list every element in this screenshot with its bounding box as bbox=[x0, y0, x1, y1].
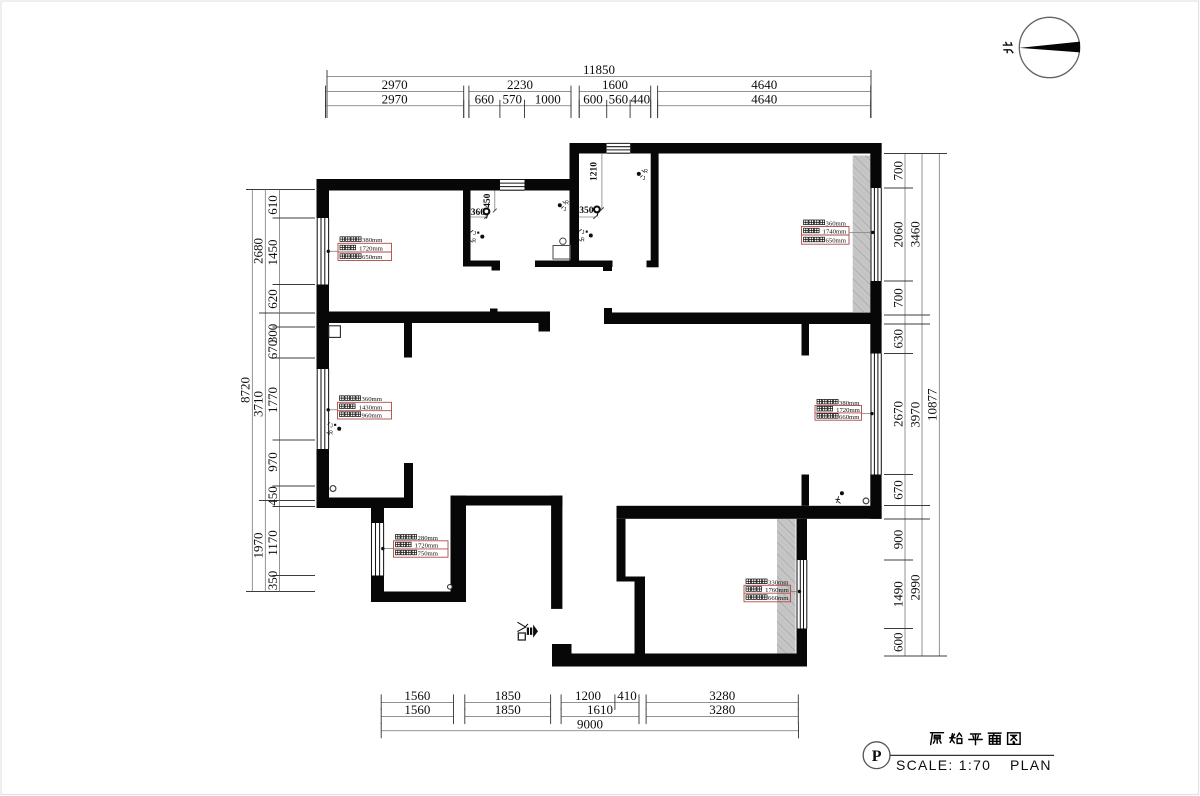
svg-text:410: 410 bbox=[617, 688, 637, 703]
svg-text:1450: 1450 bbox=[265, 240, 280, 266]
svg-text:2970: 2970 bbox=[382, 77, 408, 92]
svg-text:660: 660 bbox=[475, 91, 495, 106]
svg-text:P: P bbox=[872, 748, 882, 765]
svg-text:4640: 4640 bbox=[751, 77, 777, 92]
svg-text:700: 700 bbox=[890, 288, 905, 308]
svg-text:1490: 1490 bbox=[890, 581, 905, 607]
svg-text:660mm: 660mm bbox=[839, 414, 860, 421]
svg-text:3460: 3460 bbox=[907, 221, 922, 247]
svg-text:1610: 1610 bbox=[587, 702, 613, 717]
svg-text:900: 900 bbox=[890, 530, 905, 550]
svg-text:1850: 1850 bbox=[495, 688, 521, 703]
svg-text:2970: 2970 bbox=[382, 91, 408, 106]
svg-text:350: 350 bbox=[265, 571, 280, 591]
svg-text:1970: 1970 bbox=[251, 533, 266, 559]
svg-text:1720mm: 1720mm bbox=[359, 246, 384, 253]
svg-text:10877: 10877 bbox=[925, 388, 940, 421]
svg-text:360mm: 360mm bbox=[826, 220, 847, 227]
svg-text:3970: 3970 bbox=[907, 402, 922, 428]
svg-text:330mm: 330mm bbox=[768, 579, 789, 586]
svg-text:11850: 11850 bbox=[583, 62, 615, 77]
svg-text:1560: 1560 bbox=[404, 702, 430, 717]
svg-text:630: 630 bbox=[890, 329, 905, 349]
svg-text:1770: 1770 bbox=[265, 387, 280, 413]
svg-text:360: 360 bbox=[471, 208, 486, 218]
svg-text:440: 440 bbox=[631, 91, 651, 106]
svg-text:750mm: 750mm bbox=[418, 551, 439, 558]
svg-text:R: R bbox=[581, 237, 585, 243]
svg-text:1210: 1210 bbox=[589, 162, 599, 181]
svg-text:600: 600 bbox=[890, 633, 905, 653]
svg-text:1740mm: 1740mm bbox=[823, 229, 848, 236]
svg-text:660mm: 660mm bbox=[768, 595, 789, 602]
svg-text:1760mm: 1760mm bbox=[765, 587, 790, 594]
svg-text:1600: 1600 bbox=[602, 77, 628, 92]
svg-text:650mm: 650mm bbox=[826, 238, 847, 245]
svg-text:360mm: 360mm bbox=[362, 396, 383, 403]
svg-text:SCALE: 1:70: SCALE: 1:70 bbox=[896, 757, 991, 773]
svg-text:4640: 4640 bbox=[751, 91, 777, 106]
svg-text:1850: 1850 bbox=[495, 702, 521, 717]
svg-text:280mm: 280mm bbox=[418, 535, 439, 542]
svg-text:670: 670 bbox=[890, 480, 905, 500]
svg-text:450: 450 bbox=[265, 486, 280, 506]
svg-text:R: R bbox=[472, 238, 476, 244]
svg-text:2680: 2680 bbox=[251, 238, 266, 264]
svg-text:670: 670 bbox=[265, 340, 280, 360]
svg-text:610: 610 bbox=[265, 195, 280, 215]
svg-text:1430mm: 1430mm bbox=[359, 404, 384, 411]
svg-text:PLAN: PLAN bbox=[1010, 757, 1052, 773]
svg-text:650mm: 650mm bbox=[362, 254, 383, 261]
svg-text:570: 570 bbox=[502, 91, 522, 106]
svg-text:1720mm: 1720mm bbox=[836, 407, 861, 414]
svg-text:600: 600 bbox=[583, 91, 603, 106]
svg-text:1720mm: 1720mm bbox=[415, 543, 440, 550]
svg-text:J: J bbox=[582, 230, 585, 236]
svg-text:450: 450 bbox=[483, 193, 493, 208]
svg-text:J: J bbox=[643, 176, 646, 182]
svg-text:3280: 3280 bbox=[709, 688, 735, 703]
svg-text:3710: 3710 bbox=[251, 391, 266, 417]
svg-text:R: R bbox=[565, 200, 569, 206]
svg-text:J: J bbox=[473, 231, 476, 237]
svg-text:9000: 9000 bbox=[577, 716, 603, 731]
svg-text:J: J bbox=[330, 423, 333, 429]
svg-text:1560: 1560 bbox=[404, 688, 430, 703]
svg-text:700: 700 bbox=[890, 161, 905, 181]
svg-text:R: R bbox=[329, 431, 333, 437]
svg-text:620: 620 bbox=[265, 289, 280, 309]
svg-text:1170: 1170 bbox=[265, 530, 280, 556]
svg-text:2990: 2990 bbox=[907, 575, 922, 601]
svg-text:J: J bbox=[564, 207, 567, 213]
svg-text:2230: 2230 bbox=[507, 77, 533, 92]
svg-text:960mm: 960mm bbox=[362, 412, 383, 419]
svg-text:1200: 1200 bbox=[575, 688, 601, 703]
svg-text:R: R bbox=[644, 169, 648, 175]
svg-text:2670: 2670 bbox=[890, 401, 905, 427]
svg-text:1000: 1000 bbox=[535, 91, 561, 106]
svg-text:2060: 2060 bbox=[890, 222, 905, 248]
svg-text:380mm: 380mm bbox=[362, 237, 383, 244]
svg-text:380mm: 380mm bbox=[839, 400, 860, 407]
svg-text:350: 350 bbox=[579, 206, 594, 216]
svg-text:3280: 3280 bbox=[709, 702, 735, 717]
svg-text:970: 970 bbox=[265, 452, 280, 472]
svg-text:560: 560 bbox=[609, 91, 629, 106]
